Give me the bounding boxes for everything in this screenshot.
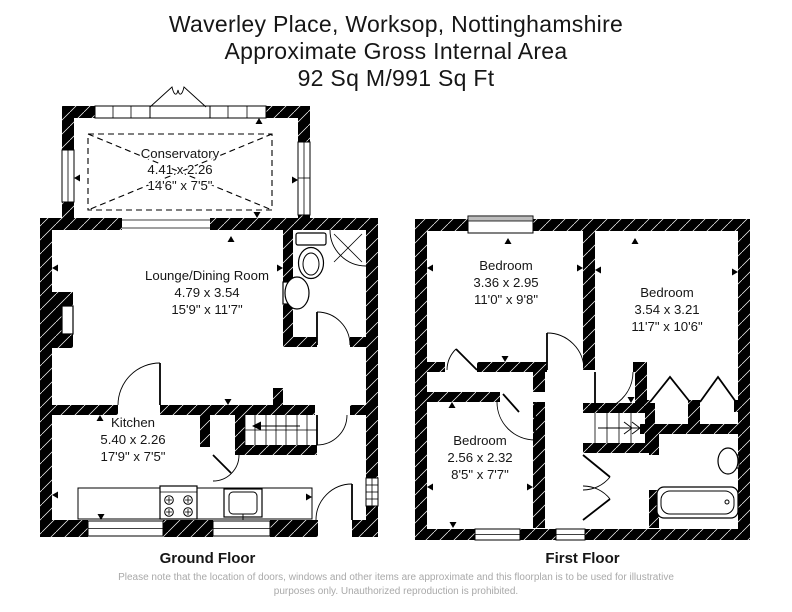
toilet-cistern-icon — [296, 233, 326, 245]
svg-text:Conservatory: Conservatory — [141, 146, 220, 161]
toilet-icon — [299, 248, 324, 279]
svg-text:2.56 x 2.32: 2.56 x 2.32 — [447, 450, 512, 465]
svg-text:Bedroom: Bedroom — [479, 258, 533, 273]
disclaimer-line1: Please note that the location of doors, … — [0, 571, 792, 585]
room-label-kitchen: Kitchen 5.40 x 2.26 17'9" x 7'5" — [100, 415, 165, 464]
ground-floor-plan: Conservatory 4.41 x 2.26 14'6" x 7'5" Lo… — [30, 78, 385, 543]
svg-text:Bedroom: Bedroom — [453, 433, 507, 448]
disclaimer: Please note that the location of doors, … — [0, 571, 792, 599]
room-label-lounge: Lounge/Dining Room 4.79 x 3.54 15'9" x 1… — [145, 268, 269, 317]
washbasin-icon — [718, 448, 738, 474]
room-label-bedroom3: Bedroom 2.56 x 2.32 8'5" x 7'7" — [447, 433, 512, 482]
staircase-ground — [245, 415, 317, 445]
floorplan-page: Waverley Place, Worksop, Nottinghamshire… — [0, 0, 792, 612]
room-label-bedroom1: Bedroom 3.36 x 2.95 11'0" x 9'8" — [473, 258, 538, 307]
kitchen-fittings — [78, 486, 312, 520]
title-address: Waverley Place, Worksop, Nottinghamshire — [0, 11, 792, 38]
disclaimer-line2: purposes only. Unauthorized reproduction… — [0, 585, 792, 599]
svg-text:5.40 x 2.26: 5.40 x 2.26 — [100, 432, 165, 447]
washbasin-icon — [285, 277, 309, 309]
room-label-conservatory: Conservatory 4.41 x 2.26 14'6" x 7'5" — [141, 146, 220, 193]
svg-text:Kitchen: Kitchen — [111, 415, 155, 430]
first-floor-plan: Bedroom 3.36 x 2.95 11'0" x 9'8" Bedroom… — [405, 205, 760, 550]
svg-text:4.79 x 3.54: 4.79 x 3.54 — [174, 285, 239, 300]
wardrobe-bifold-door-1 — [650, 377, 690, 402]
bathroom-fixtures — [657, 448, 739, 518]
bathtub-icon — [657, 487, 738, 518]
svg-text:15'9" x 11'7": 15'9" x 11'7" — [171, 302, 243, 317]
svg-text:Lounge/Dining Room: Lounge/Dining Room — [145, 268, 269, 283]
windows-ground — [62, 106, 378, 536]
svg-text:8'5" x 7'7": 8'5" x 7'7" — [451, 467, 509, 482]
svg-text:14'6" x 7'5": 14'6" x 7'5" — [148, 178, 213, 193]
wc-fixtures — [283, 230, 366, 309]
ground-floor-label: Ground Floor — [30, 550, 385, 567]
staircase-first — [595, 413, 640, 443]
conservatory-roof-apex — [150, 87, 206, 107]
svg-text:11'0" x 9'8": 11'0" x 9'8" — [474, 292, 538, 307]
svg-text:4.41 x 2.26: 4.41 x 2.26 — [147, 162, 212, 177]
svg-text:17'9" x 7'5": 17'9" x 7'5" — [101, 449, 166, 464]
wardrobe-bifold-door-2 — [700, 377, 736, 402]
svg-text:3.36 x 2.95: 3.36 x 2.95 — [473, 275, 538, 290]
first-floor-label: First Floor — [405, 550, 760, 567]
title-area-label: Approximate Gross Internal Area — [0, 38, 792, 65]
fireplace-icon — [62, 306, 73, 334]
conservatory-opening — [122, 220, 210, 228]
svg-text:11'7" x 10'6": 11'7" x 10'6" — [631, 319, 703, 334]
room-label-bedroom2: Bedroom 3.54 x 3.21 11'7" x 10'6" — [631, 285, 703, 334]
svg-text:3.54 x 3.21: 3.54 x 3.21 — [634, 302, 699, 317]
svg-text:Bedroom: Bedroom — [640, 285, 694, 300]
